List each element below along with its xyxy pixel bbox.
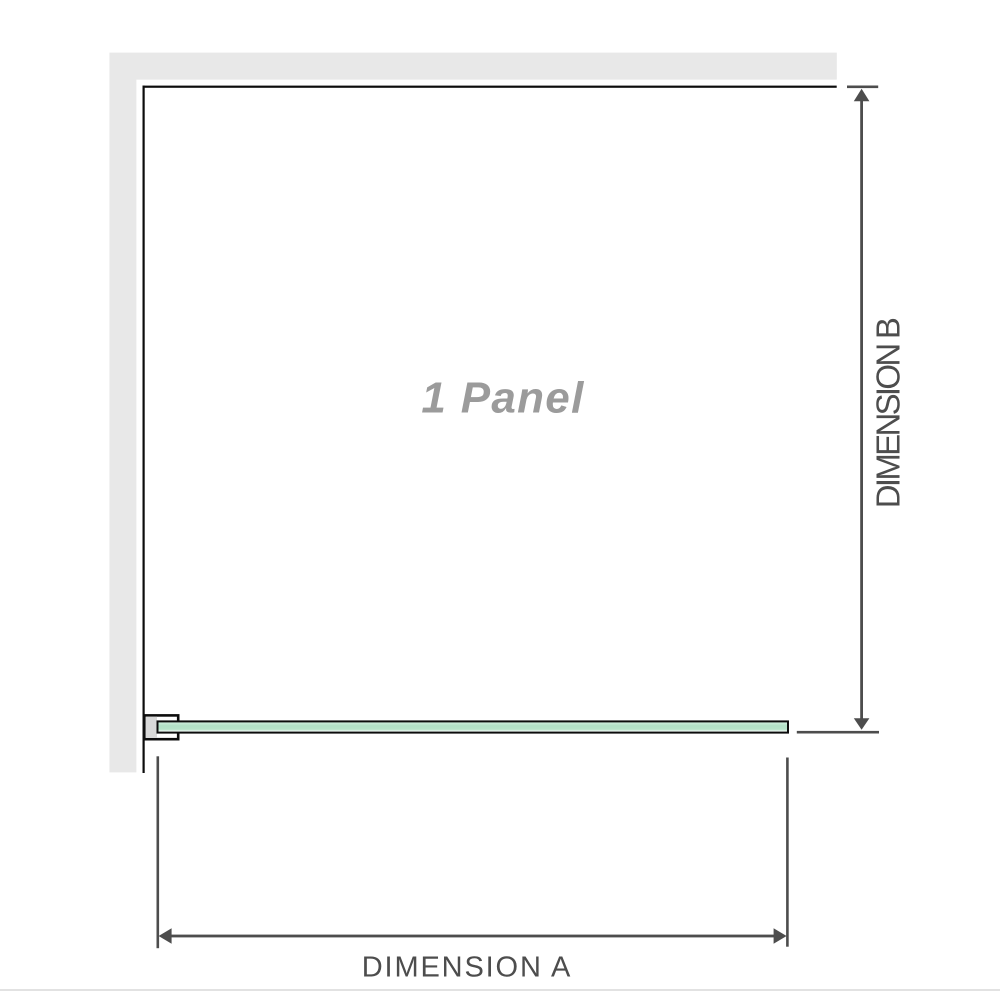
svg-text:DIMENSION A: DIMENSION A [362, 951, 573, 983]
svg-text:1 Panel: 1 Panel [421, 373, 584, 422]
svg-text:DIMENSION B: DIMENSION B [870, 318, 907, 508]
